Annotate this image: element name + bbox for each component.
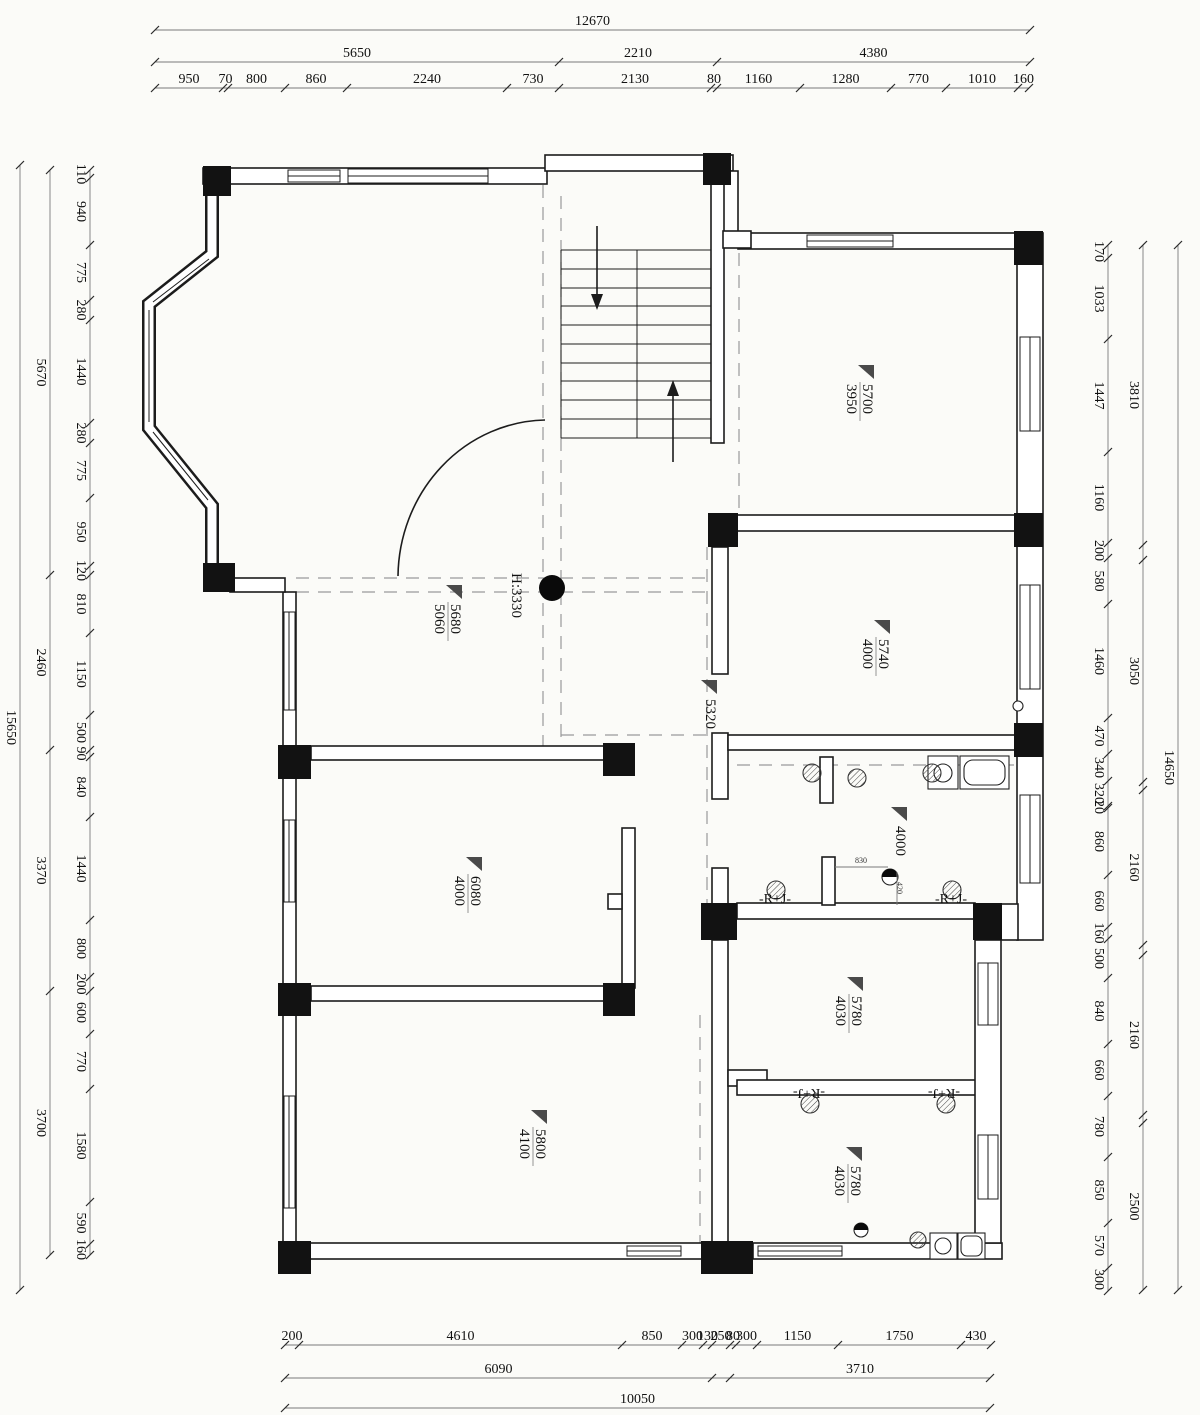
dimension-label: 280 (73, 300, 88, 321)
bay-window (149, 196, 212, 563)
wall-jog (1001, 904, 1018, 940)
staircase (561, 183, 751, 462)
room-dim-sub: 4100 (516, 1129, 532, 1159)
room-bottom-wall (311, 986, 605, 1001)
stair-right-wall (711, 183, 724, 443)
dimension-chain: 20046108503001302508030011501750430 (281, 1329, 995, 1349)
dimension-chain: 5670246033703700 (33, 166, 54, 1259)
dimension-label: 860 (1091, 831, 1106, 852)
bathtub (958, 1233, 985, 1259)
room-label-triangle (846, 1147, 862, 1161)
room-dim-main: 5800 (532, 1129, 548, 1159)
column (973, 903, 1002, 940)
dimension-label: 80 (707, 72, 721, 87)
column (278, 983, 311, 1016)
dimension-label: 850 (1091, 1180, 1106, 1201)
window (627, 1246, 681, 1256)
corridor-top-wall (728, 735, 1017, 750)
column (1014, 231, 1043, 265)
small-dimension-label: 420 (895, 882, 904, 894)
small-circle-symbol (1013, 701, 1023, 711)
dimension-label: 280 (73, 423, 88, 444)
room-label-triangle (446, 585, 462, 599)
dimension-label: 470 (1091, 726, 1106, 747)
dimension-label: 200 (1091, 540, 1106, 561)
room-dim-sub: 4000 (451, 876, 467, 906)
dimension-label: 860 (306, 72, 327, 87)
rj-marker-label: -R+J- (759, 892, 791, 907)
dimension-label: 2160 (1126, 1021, 1141, 1049)
dimension-label: 950 (179, 72, 200, 87)
window (807, 235, 893, 247)
dimension-label: 1440 (73, 358, 88, 386)
room-label: 60804000 (451, 857, 483, 913)
dimension-label: 1440 (73, 855, 88, 883)
dimension-label: 775 (73, 460, 88, 481)
dimension-label: 170 (1091, 241, 1106, 262)
dimension-label: 1010 (968, 72, 996, 87)
door-swing-arc (398, 420, 545, 576)
dimension-label: 800 (73, 938, 88, 959)
drain-symbol (848, 769, 866, 787)
dimension-label: 160 (1013, 72, 1034, 87)
walls-layer (203, 155, 1043, 1259)
dimension-label: 1033 (1091, 285, 1106, 313)
dimension-label: 14650 (1161, 750, 1176, 785)
dimension-label: 600 (73, 1002, 88, 1023)
dimension-label: 2500 (1126, 1193, 1141, 1221)
dimension-label: 90 (73, 747, 88, 761)
dimension-label: 70 (219, 72, 233, 87)
bay-window-glazing (153, 259, 209, 302)
column-dot (539, 575, 565, 601)
room-dim-main: 5780 (847, 1166, 863, 1196)
columns-layer (203, 153, 1043, 1274)
room-right-wall (622, 828, 635, 988)
room-label-triangle (874, 620, 890, 634)
hall-wall (712, 733, 728, 799)
drain-symbol (923, 764, 941, 782)
dimension-label: 1160 (745, 72, 772, 87)
dimension-label: 660 (1091, 891, 1106, 912)
dimension-label: 3700 (33, 1109, 48, 1137)
dimension-label: 1150 (73, 660, 88, 687)
bay-window-glazing (153, 432, 208, 500)
rooms-left-wall (712, 940, 728, 1243)
dimension-label: 840 (1091, 1001, 1106, 1022)
column (203, 563, 235, 592)
dimension-label: 3710 (846, 1362, 874, 1377)
room-top-wall (311, 746, 605, 760)
room-dim-sub: 4000 (859, 639, 875, 669)
dimension-label: 2160 (1126, 854, 1141, 882)
room-labels: 5700395057404000568050606080400057804030… (431, 365, 908, 1203)
floor-plan-canvas: 1267056502210438095070800860224073021308… (0, 0, 1200, 1415)
dimension-label: 20 (1091, 800, 1106, 814)
column (701, 903, 737, 940)
window (288, 170, 340, 182)
column (701, 1241, 753, 1274)
column (603, 983, 635, 1016)
dimension-chain: 38103050216021602500 (1126, 241, 1147, 1294)
column (278, 745, 311, 779)
dimension-label: 810 (73, 594, 88, 615)
window (978, 1135, 998, 1199)
window (1020, 795, 1040, 883)
drain-symbol (910, 1232, 926, 1248)
dimension-label: 500 (1091, 948, 1106, 969)
dimension-chain: 9507080086022407302130801160128077010101… (151, 72, 1034, 92)
dimension-label: 1447 (1091, 382, 1106, 410)
dimension-label: 300 (1091, 1269, 1106, 1290)
hall-wall (712, 547, 728, 674)
dimension-label: 10050 (620, 1392, 655, 1407)
room-dim-main: 6080 (467, 876, 483, 906)
dimension-label: 2240 (413, 72, 441, 87)
window (978, 963, 998, 1025)
dimension-label: 1150 (784, 1329, 811, 1344)
door-jamb (608, 894, 622, 909)
room-label-triangle (847, 977, 863, 991)
dimension-label: 2130 (621, 72, 649, 87)
window (348, 169, 488, 183)
dimension-label: 200 (73, 974, 88, 995)
dimension-label: 200 (282, 1329, 303, 1344)
window (284, 820, 295, 902)
stair-wall-stub (723, 231, 751, 248)
dimension-label: 160 (73, 1239, 88, 1260)
column (708, 513, 738, 547)
dimension-chain: 1701033144711602005801460470340320208606… (1091, 241, 1112, 1295)
dimension-chains: 1267056502210438095070800860224073021308… (3, 14, 1182, 1412)
room-label-triangle (858, 365, 874, 379)
column (603, 743, 635, 776)
room-dim-main: 5700 (859, 384, 875, 414)
room-label: 4000 (891, 807, 908, 856)
dimension-chain: 565022104380 (151, 46, 1034, 66)
dimension-label: 110 (73, 164, 88, 184)
dimension-label: 950 (73, 522, 88, 543)
dimension-label: 1280 (832, 72, 860, 87)
divider-wall (737, 515, 1017, 531)
room-label: 57804030 (831, 1147, 863, 1203)
dimension-label: 3370 (33, 857, 48, 885)
room-dim-sub: 4030 (832, 996, 848, 1026)
room-dim-sub: 3950 (843, 384, 859, 414)
dimension-label: 340 (1091, 757, 1106, 778)
dimension-label: 730 (523, 72, 544, 87)
window (284, 612, 295, 710)
drain-symbol (803, 764, 821, 782)
room-label: 57804030 (832, 977, 864, 1033)
room-dim-main: 5680 (447, 604, 463, 634)
dimension-label: 120 (73, 560, 88, 581)
dimension-label: 940 (73, 201, 88, 222)
window (1020, 585, 1040, 689)
room-label-triangle (701, 680, 717, 694)
dimension-label: 1750 (886, 1329, 914, 1344)
dimension-label: 770 (908, 72, 929, 87)
room-dim-main: 5780 (848, 996, 864, 1026)
room-dim-sub: 5060 (431, 604, 447, 634)
room-dim-main: 5740 (875, 639, 891, 669)
room-label-triangle (891, 807, 907, 821)
window (1020, 337, 1040, 431)
dimension-chain: 1109407752801440280775950120810115050090… (73, 164, 94, 1260)
room-label: 58004100 (516, 1110, 548, 1166)
dimension-label: 800 (246, 72, 267, 87)
dimension-label: 840 (73, 777, 88, 798)
stair-down-arrow (591, 226, 603, 310)
dimension-label: 430 (966, 1329, 987, 1344)
column (703, 153, 731, 185)
dimension-label: 4610 (447, 1329, 475, 1344)
room-label-triangle (466, 857, 482, 871)
stair-up-arrow (667, 380, 679, 462)
dimension-label: 570 (1091, 1235, 1106, 1256)
room-dim-main: 5320 (702, 699, 718, 729)
small-dimension-label: 830 (855, 856, 867, 865)
dimension-label: 850 (642, 1329, 663, 1344)
floor-plan-drawing: 1267056502210438095070800860224073021308… (0, 0, 1200, 1415)
column (203, 166, 231, 196)
washbasin (930, 1233, 957, 1259)
dimension-chain: 15650 (3, 161, 24, 1294)
room-label: 57003950 (843, 365, 875, 421)
dimension-label: 6090 (485, 1362, 513, 1377)
dimension-chain: 14650 (1161, 241, 1182, 1294)
dimension-label: 300 (736, 1329, 757, 1344)
column (1014, 513, 1043, 547)
dimension-label: 2210 (624, 46, 652, 61)
room-label-triangle (531, 1110, 547, 1124)
hall-wall (712, 868, 728, 905)
rj-marker-label: -R+J- (793, 1085, 825, 1100)
half-filled-circle (854, 1223, 868, 1237)
window (758, 1246, 842, 1256)
room-label: 56805060 (431, 585, 463, 641)
dimension-chain: 60903710 (281, 1362, 994, 1382)
dimension-label: 500 (73, 722, 88, 743)
room-dim-sub: 4030 (831, 1166, 847, 1196)
rj-marker-label: -R+J- (935, 892, 967, 907)
dimension-label: 1160 (1091, 484, 1106, 511)
dimension-label: 5670 (33, 359, 48, 387)
dimension-label: 160 (1091, 923, 1106, 944)
dimension-label: 3810 (1126, 381, 1141, 409)
dimension-chain: 10050 (281, 1392, 994, 1412)
room-label: 5320 (701, 680, 718, 729)
dimension-label: 5650 (343, 46, 371, 61)
room-dim-main: 4000 (892, 826, 908, 856)
dimension-label: 580 (1091, 571, 1106, 592)
column (278, 1241, 311, 1274)
dimension-label: 770 (73, 1051, 88, 1072)
bath-partition (820, 757, 833, 803)
bathtub (960, 756, 1009, 789)
dimension-label: 3050 (1126, 657, 1141, 685)
dimension-label: 1460 (1091, 647, 1106, 675)
dimension-label: 1580 (73, 1132, 88, 1160)
bath-partition (822, 857, 835, 905)
dimension-label: 590 (73, 1213, 88, 1234)
dimension-label: 2460 (33, 649, 48, 677)
dimension-label: 775 (73, 262, 88, 283)
wall-stub (230, 578, 285, 592)
column (1014, 723, 1043, 757)
ceiling-height-label: H:3330 (508, 573, 524, 618)
window (284, 1096, 295, 1208)
dimension-label: 15650 (3, 710, 18, 745)
dimension-label: 780 (1091, 1116, 1106, 1137)
dimension-label: 12670 (575, 14, 610, 29)
dimension-chain: 12670 (151, 14, 1034, 34)
dimension-label: 660 (1091, 1060, 1106, 1081)
room-label: 57404000 (859, 620, 891, 676)
rj-marker-label: -R+J- (928, 1085, 960, 1100)
dimension-label: 4380 (860, 46, 888, 61)
